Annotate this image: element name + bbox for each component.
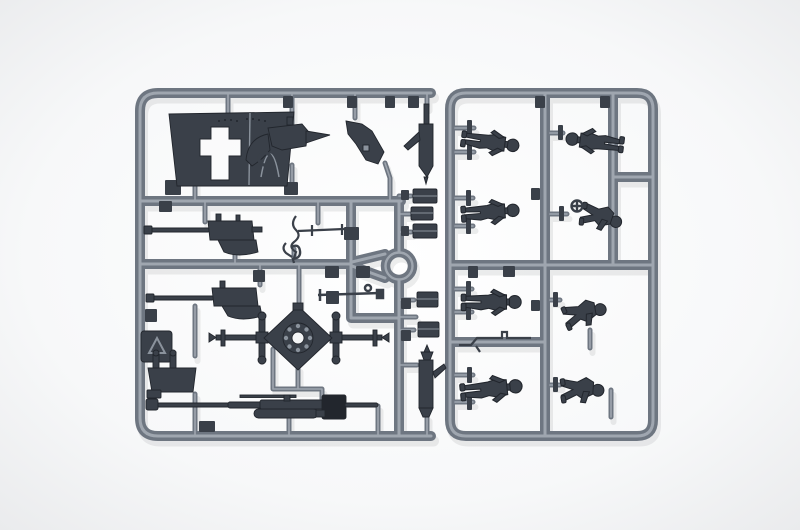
backdrop [0, 0, 800, 530]
handwheel [572, 201, 583, 212]
sprue-photo [0, 0, 800, 530]
sprue-photo-svg [0, 0, 800, 530]
